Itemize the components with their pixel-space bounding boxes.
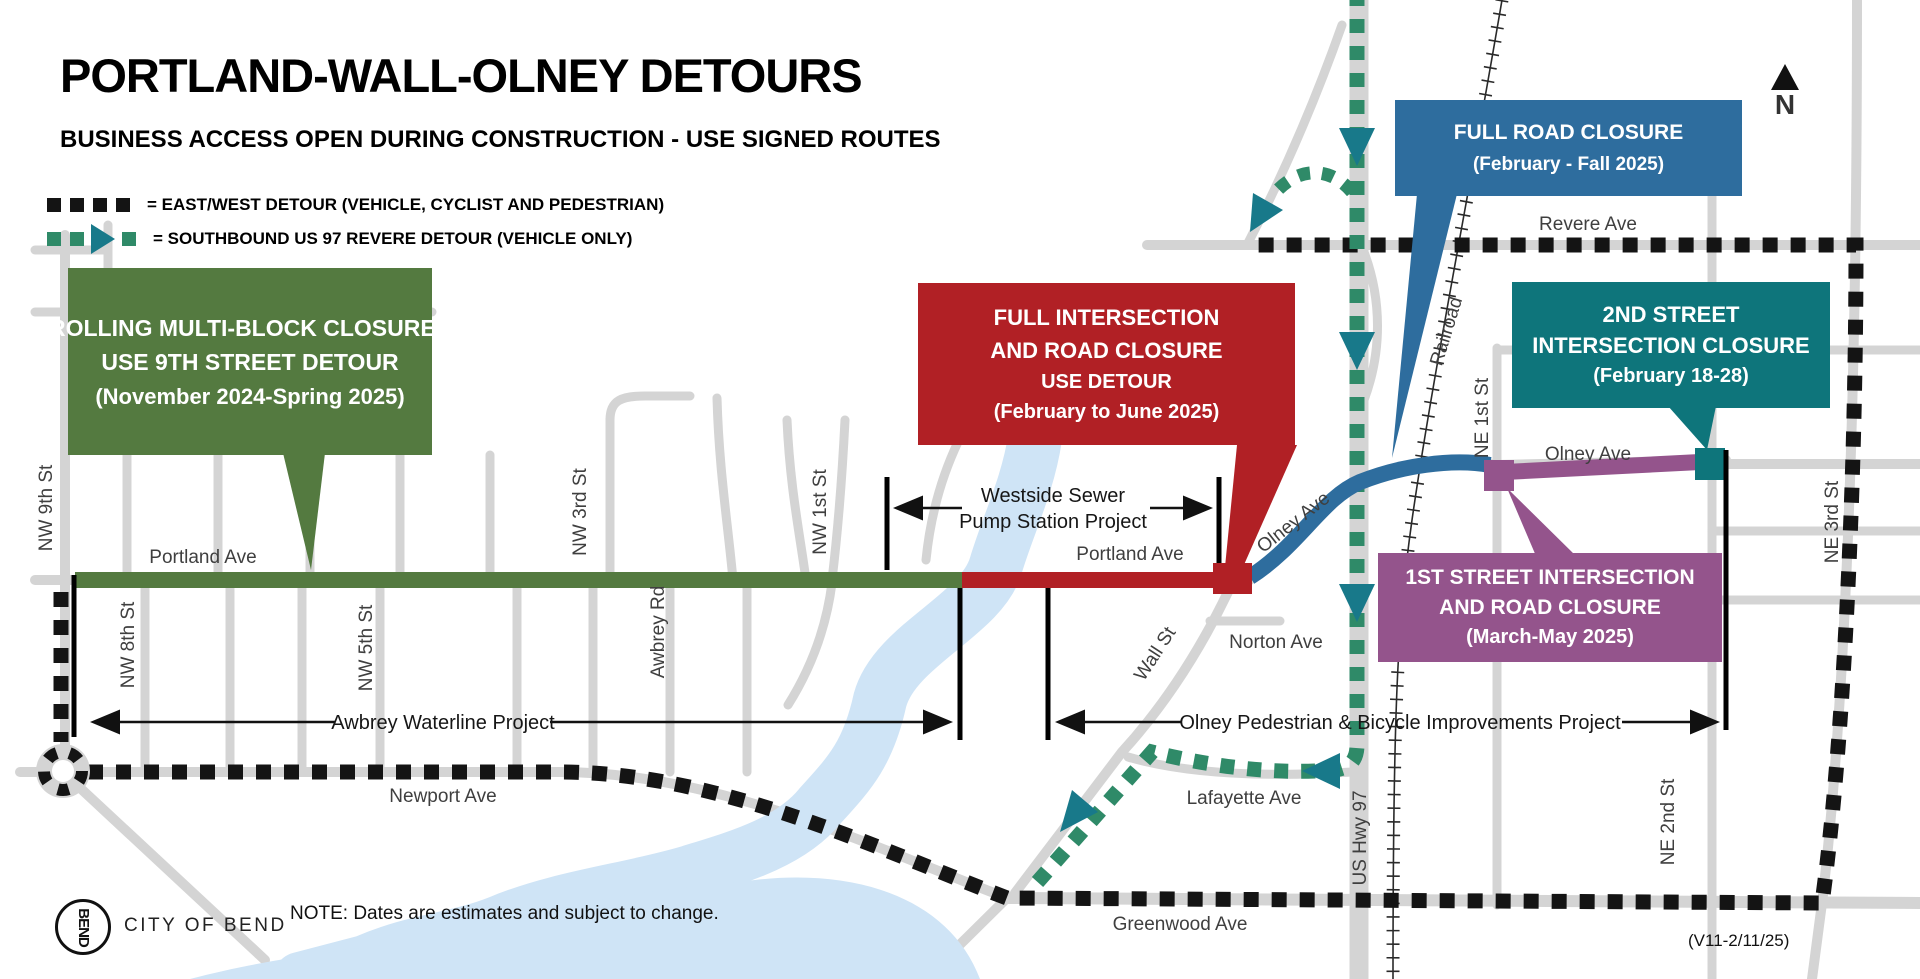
callout-full-intersection: FULL INTERSECTION AND ROAD CLOSURE USE D… bbox=[918, 283, 1295, 445]
label-westside-sewer-1: Westside Sewer bbox=[981, 485, 1125, 507]
callout-line: 2ND STREET bbox=[1603, 300, 1740, 331]
label-westside-sewer-2: Pump Station Project bbox=[959, 511, 1147, 533]
teal-arrow-icon bbox=[91, 224, 115, 254]
label-nw-5th-st: NW 5th St bbox=[356, 604, 377, 691]
callout-rolling-closures: ROLLING MULTI-BLOCK CLOSURES USE 9TH STR… bbox=[68, 268, 432, 455]
label-portland-ave-west: Portland Ave bbox=[149, 547, 256, 568]
callout-line: 1ST STREET INTERSECTION bbox=[1405, 563, 1694, 593]
legend-southbound: = SOUTHBOUND US 97 REVERE DETOUR (VEHICL… bbox=[47, 224, 632, 254]
callout-line: ROLLING MULTI-BLOCK CLOSURES bbox=[49, 311, 451, 346]
callout-line: (March-May 2025) bbox=[1466, 623, 1634, 652]
org-name: CITY OF BEND bbox=[124, 915, 287, 937]
label-wall-st: Wall St bbox=[1130, 623, 1180, 685]
callout-line: (November 2024-Spring 2025) bbox=[95, 380, 404, 413]
label-us-hwy-97: US Hwy 97 bbox=[1350, 790, 1371, 885]
black-dash-icon bbox=[70, 198, 84, 212]
label-olney-ped-bike: Olney Pedestrian & Bicycle Improvements … bbox=[1179, 712, 1621, 734]
north-arrow: N bbox=[1762, 64, 1808, 121]
label-ne-1st-st: NE 1st St bbox=[1472, 377, 1493, 458]
red-intersection-square bbox=[1213, 563, 1252, 594]
purple-intersection-square bbox=[1484, 460, 1514, 491]
legend-southbound-label: = SOUTHBOUND US 97 REVERE DETOUR (VEHICL… bbox=[153, 229, 632, 249]
detour-map: Portland Ave Portland Ave Newport Ave No… bbox=[0, 0, 1920, 979]
legend-east-west-label: = EAST/WEST DETOUR (VEHICLE, CYCLIST AND… bbox=[147, 195, 664, 215]
teal-dash-icon bbox=[47, 232, 61, 246]
label-portland-ave-east: Portland Ave bbox=[1076, 544, 1183, 565]
roundabout bbox=[36, 744, 90, 798]
teal-dash-icon bbox=[70, 232, 84, 246]
label-ne-2nd-st: NE 2nd St bbox=[1658, 778, 1679, 865]
callout-line: USE DETOUR bbox=[1041, 367, 1172, 397]
north-label: N bbox=[1762, 90, 1808, 121]
callout-line: INTERSECTION CLOSURE bbox=[1532, 331, 1809, 362]
label-nw-1st-st: NW 1st St bbox=[810, 469, 831, 555]
label-awbrey-waterline: Awbrey Waterline Project bbox=[331, 712, 555, 734]
label-ne-3rd-st: NE 3rd St bbox=[1822, 480, 1843, 563]
label-nw-3rd-st: NW 3rd St bbox=[570, 467, 591, 555]
callout-full-road-closure: FULL ROAD CLOSURE (February - Fall 2025) bbox=[1395, 100, 1742, 196]
label-olney-ave-east: Olney Ave bbox=[1545, 444, 1631, 465]
label-nw-9th-st: NW 9th St bbox=[36, 464, 57, 551]
label-awbrey-rd: Awbrey Rd bbox=[648, 586, 669, 679]
black-dash-icon bbox=[47, 198, 61, 212]
label-newport-ave: Newport Ave bbox=[389, 786, 496, 807]
black-dash-icon bbox=[116, 198, 130, 212]
teal-intersection-square bbox=[1695, 448, 1725, 480]
callout-line: (February - Fall 2025) bbox=[1473, 150, 1664, 179]
label-norton-ave: Norton Ave bbox=[1229, 632, 1323, 653]
version-text: (V11-2/11/25) bbox=[1688, 931, 1789, 951]
label-revere-ave: Revere Ave bbox=[1539, 214, 1637, 235]
callout-line: AND ROAD CLOSURE bbox=[1439, 593, 1661, 623]
page-subtitle: BUSINESS ACCESS OPEN DURING CONSTRUCTION… bbox=[60, 126, 941, 154]
black-dash-icon bbox=[93, 198, 107, 212]
legend-east-west: = EAST/WEST DETOUR (VEHICLE, CYCLIST AND… bbox=[47, 190, 664, 220]
logo-text: BEND bbox=[74, 908, 91, 947]
callout-line: AND ROAD CLOSURE bbox=[990, 334, 1222, 367]
callout-line: FULL ROAD CLOSURE bbox=[1454, 117, 1683, 150]
label-nw-8th-st: NW 8th St bbox=[118, 601, 139, 688]
callout-line: (February to June 2025) bbox=[994, 397, 1220, 427]
page-title: PORTLAND-WALL-OLNEY DETOURS bbox=[60, 48, 862, 103]
callout-line: USE 9TH STREET DETOUR bbox=[101, 345, 398, 380]
callout-2nd-street-closure: 2ND STREET INTERSECTION CLOSURE (Februar… bbox=[1512, 282, 1830, 408]
city-of-bend-logo: BEND bbox=[55, 899, 111, 955]
callout-1st-street-closure: 1ST STREET INTERSECTION AND ROAD CLOSURE… bbox=[1378, 553, 1722, 662]
callout-line: (February 18-28) bbox=[1593, 362, 1749, 390]
north-arrow-icon bbox=[1771, 64, 1799, 90]
note-text: NOTE: Dates are estimates and subject to… bbox=[290, 903, 719, 925]
label-greenwood-ave: Greenwood Ave bbox=[1113, 914, 1248, 935]
callout-line: FULL INTERSECTION bbox=[994, 301, 1220, 334]
label-railroad: Railroad bbox=[1426, 294, 1467, 368]
teal-dash-icon bbox=[122, 232, 136, 246]
label-lafayette-ave: Lafayette Ave bbox=[1187, 788, 1302, 809]
